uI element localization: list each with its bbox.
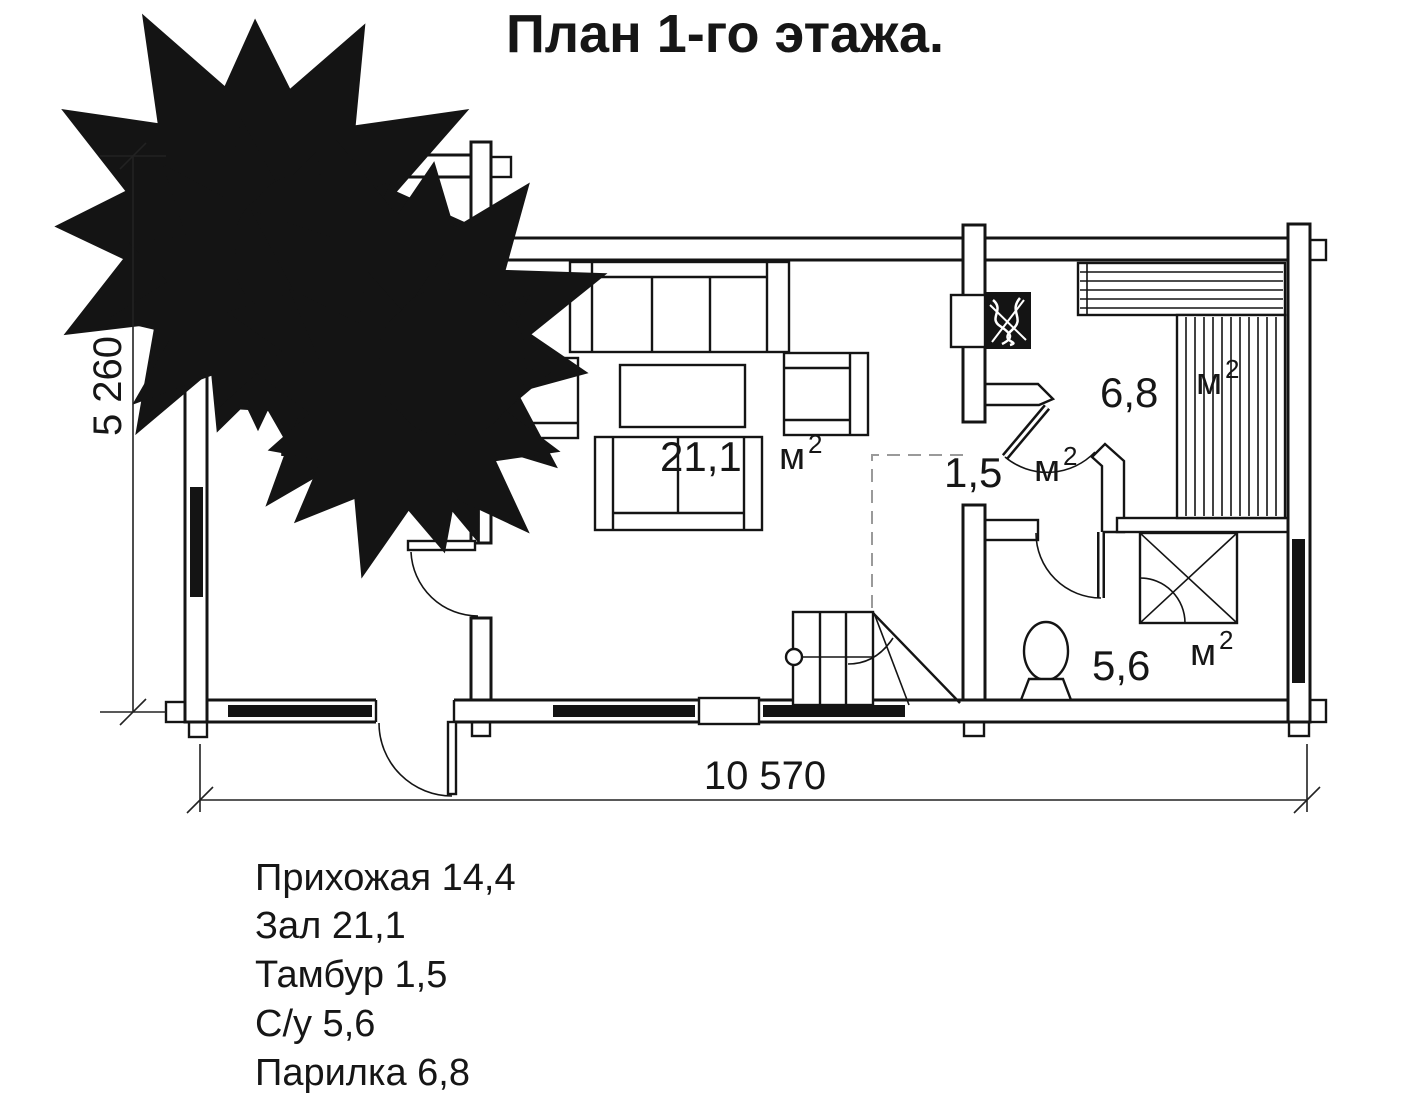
legend-item: Тамбур 1,5 xyxy=(255,954,447,996)
hall-door xyxy=(408,541,478,616)
legend-item: С/у 5,6 xyxy=(255,1003,375,1045)
wall-bath-north-stub xyxy=(985,520,1038,540)
room-sup-bath: 2 xyxy=(1219,625,1233,655)
wall-steamroom-south xyxy=(1117,518,1310,532)
room-area-hall: 21,1 xyxy=(660,433,742,480)
room-sup-hall: 2 xyxy=(808,429,822,459)
window-icon xyxy=(553,705,695,717)
room-area-steam: 6,8 xyxy=(1100,369,1158,416)
coffee-table xyxy=(620,365,745,427)
dimension-width: 10 570 xyxy=(187,744,1320,813)
shower-cabin-icon xyxy=(1140,533,1237,623)
page-title: План 1-го этажа. xyxy=(506,4,944,64)
wall-hall-west-lower xyxy=(471,618,491,700)
plant-icon xyxy=(341,278,491,466)
room-unit-bath: м xyxy=(1190,632,1216,674)
door-leaf xyxy=(448,722,456,794)
floor-plan-page: План 1-го этажа. xyxy=(0,0,1422,1100)
legend: Прихожая 14,4 Зал 21,1 Тамбур 1,5 С/у 5,… xyxy=(255,857,516,1094)
room-unit-steam: м xyxy=(1196,361,1222,403)
room-sup-steam: 2 xyxy=(1225,354,1239,384)
wall-main-top xyxy=(471,238,1310,260)
bathroom-door xyxy=(1036,532,1101,598)
floor-plan-drawing: План 1-го этажа. xyxy=(0,0,1422,1100)
window-icon xyxy=(763,705,905,717)
legend-item: Прихожая 14,4 xyxy=(255,857,516,899)
window-mullion xyxy=(699,698,759,724)
window-icon xyxy=(1292,539,1305,683)
room-sup-tambour: 2 xyxy=(1063,441,1077,471)
staircase xyxy=(786,455,963,705)
window-icon xyxy=(190,487,203,597)
legend-item: Зал 21,1 xyxy=(255,905,406,947)
stove-firebox xyxy=(951,295,985,347)
door-swing-arc xyxy=(411,552,478,616)
dimension-height-label: 5 260 xyxy=(86,336,130,436)
dimension-width-label: 10 570 xyxy=(704,754,826,798)
wall-bath-west xyxy=(963,505,985,700)
wall-tambour-north xyxy=(985,384,1053,405)
entrance-door xyxy=(376,698,456,796)
legend-item: Парилка 6,8 xyxy=(255,1052,470,1094)
door-swing-arc xyxy=(379,723,452,796)
toilet-icon xyxy=(1021,622,1071,700)
room-unit-hall: м xyxy=(779,436,805,478)
stair-newel-post xyxy=(786,649,802,665)
room-area-bath: 5,6 xyxy=(1092,642,1150,689)
armchair-right xyxy=(784,353,868,435)
window-icon xyxy=(228,705,372,717)
room-area-tambour: 1,5 xyxy=(944,449,1002,496)
door-swing-arc xyxy=(1036,533,1101,598)
room-unit-tambour: м xyxy=(1034,448,1060,490)
sauna-stove-icon xyxy=(951,292,1031,349)
